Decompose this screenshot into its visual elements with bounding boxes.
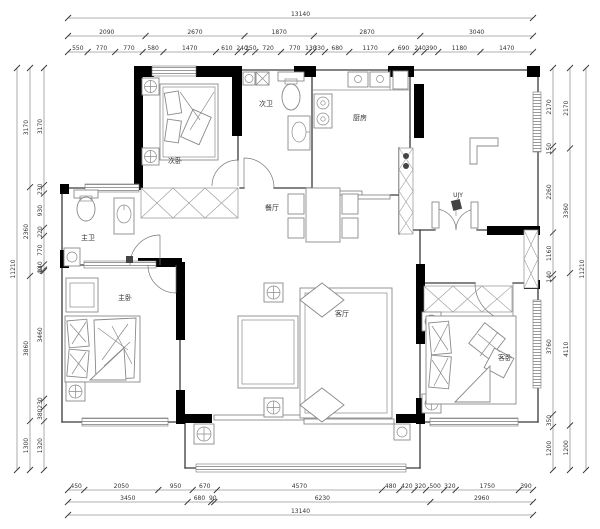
svg-text:3170: 3170 [23, 120, 30, 135]
svg-text:150: 150 [546, 143, 553, 155]
door-master-bedroom [148, 265, 176, 293]
dining-table [306, 188, 340, 242]
svg-text:220: 220 [37, 226, 44, 238]
dim-right-inner: 21701502260116014037603501200 [546, 65, 556, 473]
label-master-bath: 主卫 [81, 233, 95, 242]
svg-text:3360: 3360 [563, 203, 570, 218]
dim-bottom-row1: 450205095067045704804203205003201750390 [65, 483, 536, 493]
dim-bottom-total: 13140 [65, 508, 536, 518]
svg-text:770: 770 [123, 45, 135, 52]
floor-plan-drawing: 13140 20902670187028703040 5507707705801… [0, 0, 600, 529]
svg-text:330: 330 [313, 45, 325, 52]
svg-text:1200: 1200 [546, 441, 553, 456]
svg-text:13140: 13140 [291, 508, 310, 515]
door-secondary-bath [244, 158, 274, 188]
toilet-icon [282, 84, 300, 110]
svg-text:2090: 2090 [99, 29, 114, 36]
svg-text:6230: 6230 [315, 495, 330, 502]
closet-secondary-bedroom [141, 188, 238, 218]
sink-cabinet [288, 116, 310, 150]
pillow [165, 119, 182, 143]
svg-text:2170: 2170 [563, 100, 570, 115]
floor-plan-page: 13140 20902670187028703040 5507707705801… [0, 0, 600, 529]
svg-text:230: 230 [37, 397, 44, 409]
door-post [432, 202, 439, 228]
door-secondary-bedroom [212, 160, 238, 186]
svg-text:3040: 3040 [469, 29, 484, 36]
svg-text:1320: 1320 [37, 438, 44, 453]
svg-text:3450: 3450 [120, 495, 135, 502]
svg-text:770: 770 [37, 244, 44, 256]
pillow [67, 349, 89, 378]
svg-text:4110: 4110 [563, 341, 570, 356]
svg-text:680: 680 [194, 495, 206, 502]
coffee-table [238, 316, 298, 388]
svg-text:580: 580 [147, 45, 159, 52]
svg-text:250: 250 [245, 45, 257, 52]
dim-left-mid: 3170236038601300 [23, 65, 33, 473]
svg-text:3460: 3460 [37, 327, 44, 342]
label-dining: 餐厅 [265, 203, 279, 212]
pipe-shaft [399, 148, 413, 234]
floor-drain-icon [126, 256, 133, 263]
svg-text:480: 480 [385, 483, 397, 490]
svg-text:2360: 2360 [23, 224, 30, 239]
svg-text:930: 930 [37, 205, 44, 217]
svg-text:390: 390 [520, 483, 532, 490]
svg-text:1300: 1300 [23, 438, 30, 453]
dim-left-outer: 11210 [10, 65, 20, 473]
window-masterbed-top [84, 261, 156, 268]
svg-text:13140: 13140 [291, 11, 310, 18]
window-balcony [196, 464, 406, 472]
washing-machine-icon [64, 248, 80, 266]
furniture-master-bath [64, 190, 134, 266]
svg-text:1160: 1160 [546, 246, 553, 261]
svg-text:420: 420 [401, 483, 413, 490]
svg-text:350: 350 [546, 415, 553, 427]
furniture-secondary-bath [243, 72, 310, 150]
chair [288, 194, 304, 214]
column-L [470, 138, 498, 164]
svg-text:680: 680 [331, 45, 343, 52]
svg-text:2960: 2960 [474, 495, 489, 502]
label-secondary-bath: 次卫 [259, 99, 273, 108]
svg-text:11210: 11210 [10, 259, 17, 278]
planter [394, 424, 410, 440]
furniture-secondary-bedroom [142, 78, 218, 165]
window-masterbed-bottom [82, 418, 168, 426]
svg-text:1170: 1170 [363, 45, 378, 52]
svg-text:450: 450 [70, 483, 82, 490]
pillow [164, 91, 181, 115]
sink-double [348, 72, 368, 87]
svg-text:3760: 3760 [546, 339, 553, 354]
svg-text:240: 240 [414, 45, 426, 52]
svg-text:140: 140 [546, 271, 553, 283]
svg-text:90: 90 [209, 495, 217, 502]
svg-text:3860: 3860 [23, 341, 30, 356]
svg-text:610: 610 [221, 45, 233, 52]
svg-text:2870: 2870 [359, 29, 374, 36]
chair [288, 218, 304, 238]
svg-text:550: 550 [72, 45, 84, 52]
svg-text:40: 40 [37, 266, 44, 274]
dim-top-total: 13140 [65, 11, 536, 21]
svg-text:1180: 1180 [452, 45, 467, 52]
dim-left-inner: 31702309302207701404034602303801320 [37, 65, 47, 473]
svg-text:320: 320 [415, 483, 427, 490]
window-top-bedroom [152, 66, 196, 76]
closet-guest-bedroom [424, 286, 512, 312]
svg-text:1750: 1750 [480, 483, 495, 490]
stove-icon [314, 94, 332, 128]
svg-text:690: 690 [398, 45, 410, 52]
svg-text:500: 500 [429, 483, 441, 490]
svg-text:2050: 2050 [114, 483, 129, 490]
dim-right-outer: 11210 [579, 65, 589, 473]
svg-text:770: 770 [96, 45, 108, 52]
furniture-living [238, 283, 392, 422]
dim-right-mid: 2170336041101200 [563, 65, 573, 473]
door-sliding-balcony [214, 415, 304, 420]
svg-text:2670: 2670 [187, 29, 202, 36]
entry-marker-icon [451, 199, 462, 211]
dim-bottom-row2: 34506809062302960 [65, 495, 536, 505]
label-living: 客厅 [335, 309, 349, 318]
dim-top-row2: 20902670187028703040 [65, 29, 536, 39]
label-master-bedroom: 主卧 [118, 293, 132, 302]
furniture-guest-bedroom [422, 312, 516, 413]
furniture-balcony [194, 424, 410, 444]
svg-text:380: 380 [37, 408, 44, 420]
counter-appliance [393, 71, 408, 89]
window-right-upper [533, 92, 541, 152]
furniture-dining [288, 188, 358, 242]
svg-text:4570: 4570 [292, 483, 307, 490]
label-entry-note: UJY [453, 192, 463, 199]
svg-text:670: 670 [199, 483, 211, 490]
svg-text:11210: 11210 [579, 259, 586, 278]
svg-text:230: 230 [37, 183, 44, 195]
svg-text:770: 770 [289, 45, 301, 52]
window-guestbed-bottom [430, 418, 518, 426]
svg-text:390: 390 [426, 45, 438, 52]
svg-text:950: 950 [170, 483, 182, 490]
svg-text:2170: 2170 [546, 99, 553, 114]
svg-text:1470: 1470 [499, 45, 514, 52]
svg-text:1470: 1470 [182, 45, 197, 52]
svg-text:1870: 1870 [272, 29, 287, 36]
shaft-right-wall [524, 230, 538, 288]
dim-top-row3: 5507707705801470610240250720770130330680… [65, 45, 536, 55]
entry-hall [432, 138, 498, 228]
chair [342, 218, 358, 238]
chair [342, 194, 358, 214]
svg-text:1200: 1200 [563, 440, 570, 455]
svg-text:720: 720 [262, 45, 274, 52]
svg-text:320: 320 [444, 483, 456, 490]
toilet-tank [278, 72, 304, 81]
window-right-lower [533, 300, 541, 388]
svg-text:2260: 2260 [546, 184, 553, 199]
label-secondary-bedroom: 次卧 [168, 156, 182, 165]
door-post [471, 202, 478, 228]
label-guest-bedroom: 客卧 [498, 353, 512, 362]
label-kitchen: 厨房 [353, 113, 367, 122]
svg-text:3170: 3170 [37, 119, 44, 134]
